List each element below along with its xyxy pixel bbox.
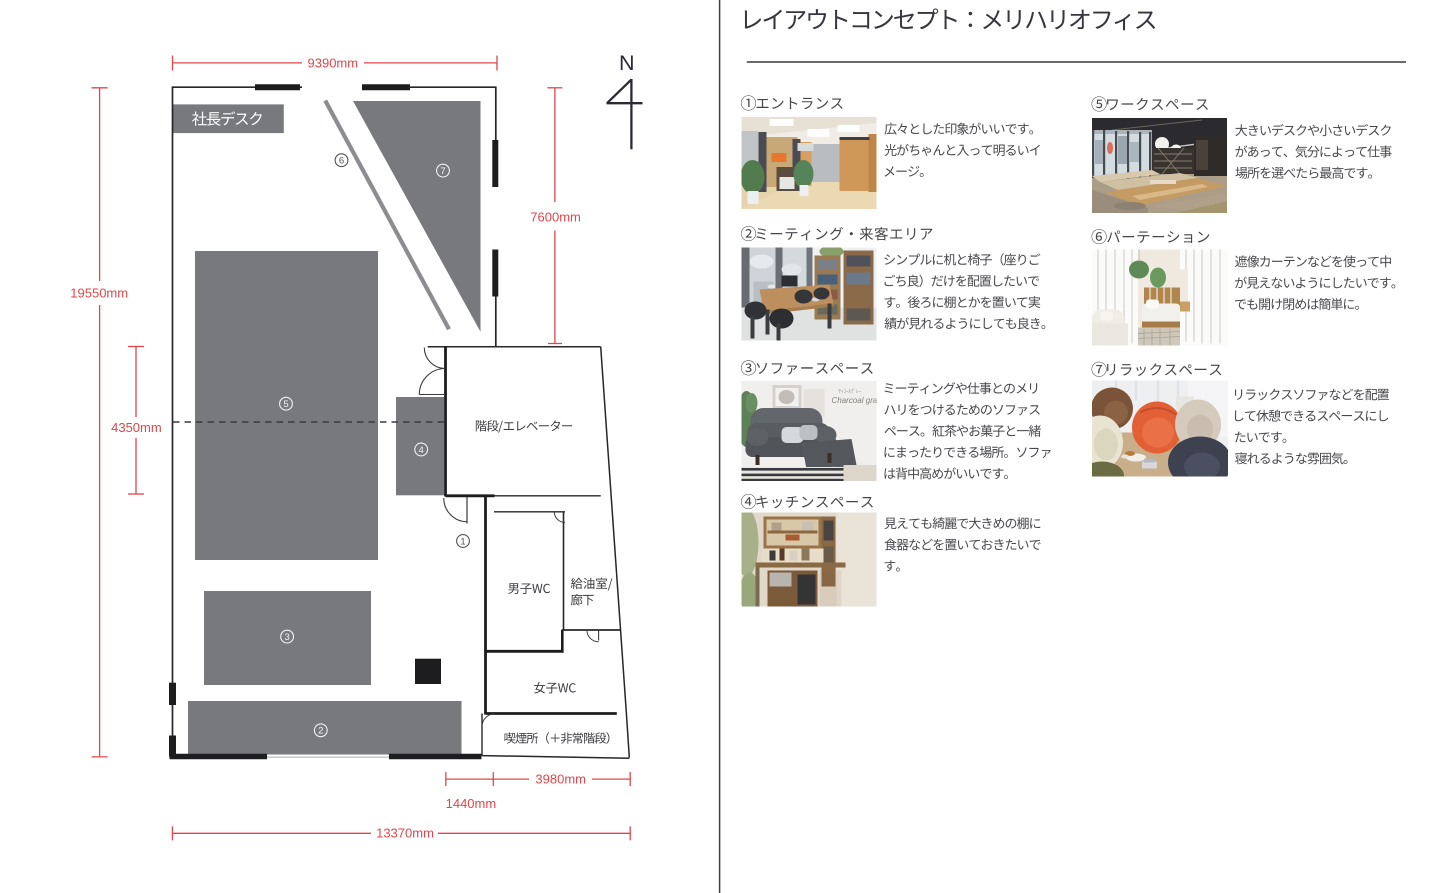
svg-text:7600mm: 7600mm xyxy=(530,210,581,225)
svg-text:ﾁｬｺｰﾙｸﾞﾚｰ: ﾁｬｺｰﾙｸﾞﾚｰ xyxy=(839,388,862,395)
svg-text:3: 3 xyxy=(284,632,289,643)
svg-text:N: N xyxy=(619,51,635,75)
svg-text:9390mm: 9390mm xyxy=(308,55,359,70)
svg-text:13370mm: 13370mm xyxy=(376,826,434,841)
svg-text:19550mm: 19550mm xyxy=(70,286,128,301)
svg-text:4: 4 xyxy=(419,445,424,456)
svg-text:2: 2 xyxy=(318,726,323,737)
svg-text:5: 5 xyxy=(283,399,288,410)
svg-text:1: 1 xyxy=(460,536,465,547)
svg-text:3980mm: 3980mm xyxy=(535,772,586,787)
svg-text:4350mm: 4350mm xyxy=(111,420,162,435)
svg-text:1440mm: 1440mm xyxy=(446,796,497,811)
svg-text:6: 6 xyxy=(339,156,344,167)
svg-text:Charcoal gray: Charcoal gray xyxy=(832,396,883,405)
svg-text:7: 7 xyxy=(440,166,445,177)
